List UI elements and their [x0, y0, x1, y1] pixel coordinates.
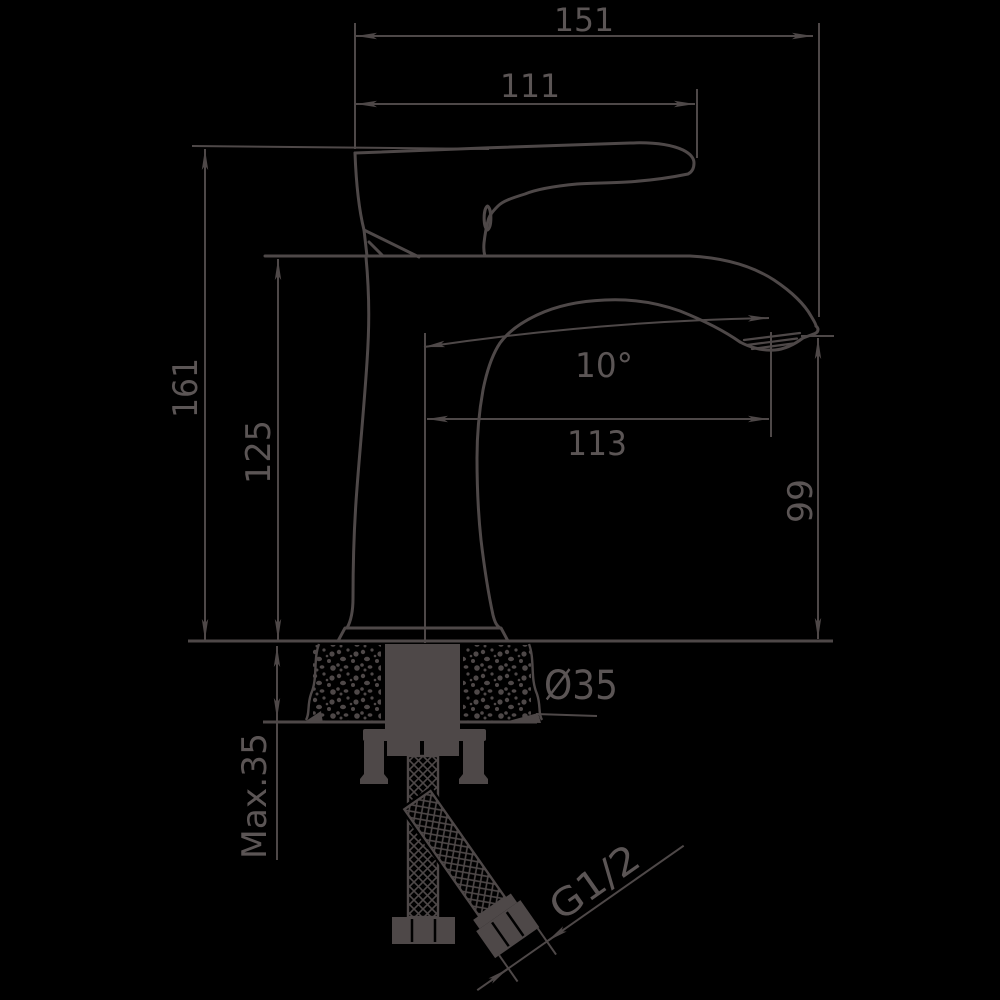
- body-left-edge: [347, 257, 369, 628]
- spout-reach-label: 113: [567, 424, 627, 464]
- handle-base-inner-edge: [369, 242, 383, 256]
- thread-size-label: G1/2: [541, 836, 648, 929]
- technical-drawing-canvas: G1/2: [0, 0, 1000, 1000]
- spout-top-width-label: 111: [500, 67, 560, 105]
- mounting-leg-left: [360, 741, 388, 784]
- spout-outlet-height-label: 99: [781, 479, 821, 523]
- faucet-dimension-drawing: G1/2: [0, 0, 1000, 1000]
- handle-lever: [355, 143, 694, 256]
- ext-line-top-height: [192, 146, 489, 149]
- base-plate: [338, 628, 508, 641]
- overall-height-label: 161: [166, 358, 206, 418]
- leader-line-dia35: [536, 714, 597, 716]
- dim-line-10deg: [424, 318, 769, 347]
- countertop-section: [188, 641, 833, 723]
- faucet-shank: [385, 644, 460, 730]
- body-height-label: 125: [239, 420, 279, 484]
- countertop-left-block: [313, 645, 381, 721]
- hose-end-nut: [392, 917, 455, 944]
- mounting-flange: [363, 729, 486, 741]
- mounting-leg-right: [459, 741, 488, 784]
- spout-angle-label: 10°: [575, 346, 633, 386]
- handle-left-edge: [355, 153, 367, 256]
- overall-width-label: 151: [554, 1, 614, 39]
- dimension-labels: 151 111 161 125 99 10° 113 Ø35 Max.35: [166, 1, 821, 859]
- faucet-outline: [265, 143, 818, 641]
- lock-nut-left: [387, 741, 420, 756]
- dimension-lines: [192, 23, 834, 860]
- countertop-right-block: [463, 645, 531, 721]
- body-top-and-spout: [265, 256, 816, 326]
- lock-nut-right: [424, 741, 459, 756]
- mounting-hole-diameter-label: Ø35: [544, 663, 618, 709]
- max-counter-thickness-label: Max.35: [235, 733, 275, 859]
